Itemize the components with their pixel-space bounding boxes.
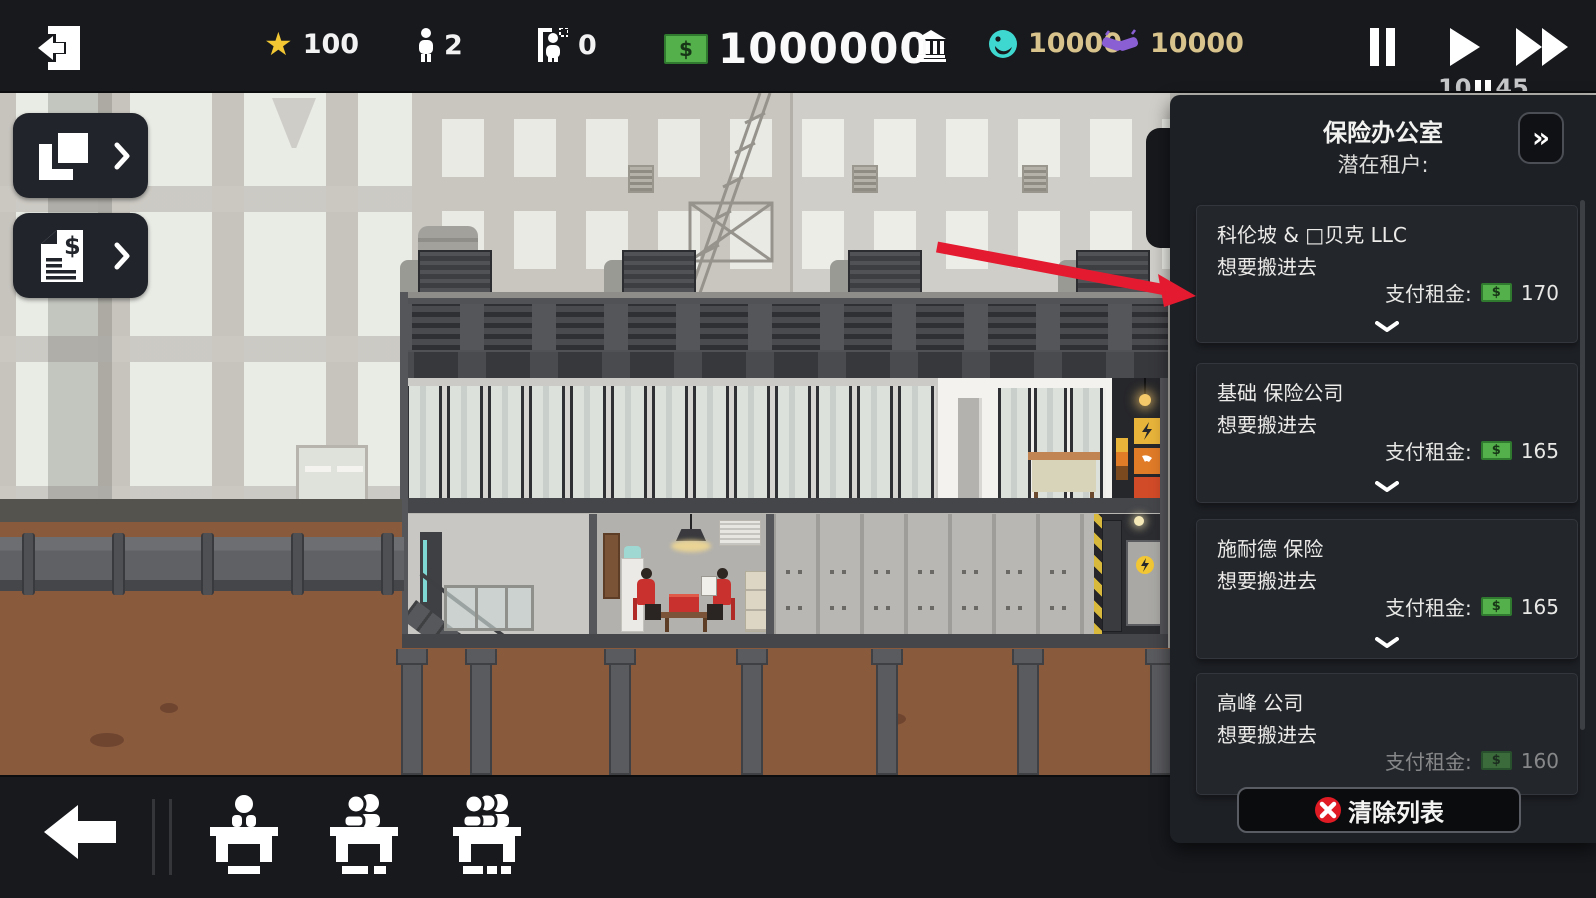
star-rating-stat: ★ 100 <box>264 28 359 60</box>
rent-value: 160 <box>1521 749 1559 773</box>
window-ac-unit <box>628 165 654 193</box>
floors-menu-button[interactable] <box>13 113 148 198</box>
desk-3-person-icon <box>449 793 525 877</box>
pause-button[interactable] <box>1368 28 1398 70</box>
support-pier <box>470 665 492 775</box>
support-pier <box>741 665 763 775</box>
poster-stack <box>1116 438 1128 480</box>
electrical-cabinet <box>1126 540 1162 626</box>
influence-icon <box>988 29 1018 59</box>
play-icon <box>1448 28 1482 66</box>
back-button[interactable] <box>44 803 118 865</box>
roof-duct <box>604 260 622 294</box>
rent-label: 支付租金: <box>1385 592 1472 621</box>
support-pier <box>401 665 423 775</box>
tenant-name: 科伦坡 & □贝克 LLC <box>1217 220 1557 250</box>
mechanical-floor-lower <box>400 352 1168 378</box>
tower-right-wall <box>1160 378 1168 648</box>
clock-minutes: 45 <box>1495 74 1528 93</box>
rent-value: 165 <box>1521 595 1559 619</box>
expand-card-button[interactable] <box>1373 479 1401 498</box>
sidewalk <box>0 499 402 522</box>
lamp-bulb <box>1139 394 1151 406</box>
expand-card-button[interactable] <box>1373 635 1401 654</box>
move-in-icon <box>538 28 568 62</box>
cash-icon: $ <box>664 34 708 64</box>
table-leg <box>703 618 707 632</box>
pipe-coupling <box>381 533 394 595</box>
fast-forward-button[interactable] <box>1516 28 1572 70</box>
rent-value: 170 <box>1521 281 1559 305</box>
movers-stat: 0 <box>538 28 597 62</box>
money-value: 1000000 <box>718 24 930 73</box>
hazard-stripe <box>1094 514 1102 634</box>
tenant-card[interactable]: 施耐德 保险 想要搬进去 支付租金: $ 165 <box>1196 519 1578 659</box>
movers-value: 0 <box>578 30 597 61</box>
tenant-name: 高峰 公司 <box>1217 688 1557 718</box>
tenant-card[interactable]: 科伦坡 & □贝克 LLC 想要搬进去 支付租金: $ 170 <box>1196 205 1578 343</box>
contacts-value: 10000 <box>1150 28 1244 59</box>
break-room[interactable] <box>597 514 766 634</box>
window-ac-unit <box>1022 165 1048 193</box>
tenant-name: 基础 保险公司 <box>1217 378 1557 408</box>
window-ac-unit <box>852 165 878 193</box>
interior-wall <box>589 514 597 634</box>
ac-unit <box>719 520 761 546</box>
rent-row: 支付租金: $ 165 <box>1385 592 1559 621</box>
vacant-insurance-office[interactable] <box>938 378 1112 500</box>
tenant-card[interactable]: 高峰 公司 想要搬进去 支付租金: $ 160 <box>1196 673 1578 795</box>
utility-door <box>1102 520 1122 632</box>
contacts-stat: 10000 <box>1100 28 1244 59</box>
glass-balustrade <box>444 585 534 631</box>
back-door <box>603 533 620 599</box>
tenant-name: 施耐德 保险 <box>1217 534 1557 564</box>
desk-2-person-icon <box>326 793 402 877</box>
upper-floor-glass-panels <box>406 386 936 500</box>
pipe-coupling <box>112 533 125 595</box>
population-value: 2 <box>444 30 463 61</box>
svg-text:$: $ <box>64 232 81 260</box>
play-button[interactable] <box>1448 28 1482 70</box>
pipe-coupling <box>201 533 214 595</box>
support-pier <box>396 649 428 665</box>
clear-list-button[interactable]: 清除列表 <box>1237 787 1521 833</box>
finances-menu-button[interactable]: $ <box>13 213 148 298</box>
desk-1-person-icon <box>206 793 282 877</box>
tenant-panel: 保险办公室 潜在租户: » 科伦坡 & □贝克 LLC 想要搬进去 支付租金: … <box>1170 95 1596 843</box>
rent-value: 165 <box>1521 439 1559 463</box>
chevron-right-icon <box>114 242 130 270</box>
toolbar-divider <box>152 799 172 875</box>
support-pier <box>604 649 636 665</box>
expand-card-button[interactable] <box>1373 319 1401 338</box>
exit-button[interactable] <box>34 22 86 74</box>
invoice-icon: $ <box>37 228 87 284</box>
cash-icon: $ <box>1481 441 1512 460</box>
paneled-corridor[interactable] <box>774 514 1094 634</box>
fast-forward-icon <box>1516 28 1572 66</box>
support-pier <box>1017 665 1039 775</box>
desk-2-person-button[interactable] <box>326 793 402 881</box>
rent-label: 支付租金: <box>1385 746 1472 775</box>
population-stat: 2 <box>418 28 463 62</box>
money-stat: $ 1000000 <box>664 24 930 73</box>
floor-slab <box>400 498 1168 513</box>
roof-duct <box>1058 260 1076 294</box>
roof-duct <box>830 260 848 294</box>
warning-poster <box>1134 477 1160 499</box>
office-desk <box>1032 460 1096 492</box>
panel-scrollbar[interactable] <box>1580 200 1585 730</box>
dirt-blotch <box>90 733 124 747</box>
desk-3-person-button[interactable] <box>449 793 525 881</box>
pause-icon <box>1368 28 1398 66</box>
chevron-down-icon <box>1375 637 1399 648</box>
electric-poster <box>1134 418 1160 444</box>
person-icon <box>418 28 434 62</box>
stairwell-room[interactable] <box>408 514 589 634</box>
hvac-unit <box>418 250 492 294</box>
exit-door-icon <box>34 22 86 74</box>
cash-icon: $ <box>1481 751 1512 770</box>
roof-duct <box>400 260 418 294</box>
clear-list-label: 清除列表 <box>1348 793 1444 828</box>
ground-slab <box>400 634 1168 649</box>
bank-button[interactable] <box>916 30 946 66</box>
lamp-cord <box>690 514 692 530</box>
support-pier <box>609 665 631 775</box>
rent-label: 支付租金: <box>1385 436 1472 465</box>
lamp-cord <box>1144 378 1146 394</box>
back-arrow-icon <box>44 803 118 861</box>
chevron-down-icon <box>1375 321 1399 332</box>
support-pier <box>1012 649 1044 665</box>
cash-icon: $ <box>1481 283 1512 302</box>
layers-icon <box>37 128 95 184</box>
desk-1-person-button[interactable] <box>206 793 282 881</box>
phone-poster <box>1134 448 1160 474</box>
support-pier <box>871 649 903 665</box>
hvac-unit <box>848 250 922 294</box>
support-pier <box>465 649 497 665</box>
lamp-glow <box>671 540 711 552</box>
red-cooler-box <box>669 594 699 612</box>
support-pier <box>876 665 898 775</box>
game-screen: ★ 100 2 0 $ 1000000 <box>0 0 1596 898</box>
table-leg <box>665 618 669 632</box>
rent-row: 支付租金: $ 170 <box>1385 278 1559 307</box>
chevron-double-right-icon: » <box>1532 121 1550 154</box>
panel-rivets <box>774 606 1094 610</box>
hvac-unit <box>622 250 696 294</box>
support-pier <box>736 649 768 665</box>
rent-row: 支付租金: $ 165 <box>1385 436 1559 465</box>
newspaper <box>701 576 717 596</box>
office-door <box>958 398 982 500</box>
utility-room[interactable] <box>1094 514 1168 634</box>
chevron-right-icon <box>114 142 130 170</box>
star-icon: ★ <box>264 28 293 60</box>
utility-lamp <box>1134 516 1144 526</box>
chevron-down-icon <box>1375 481 1399 492</box>
game-clock: 10 45 <box>1438 74 1529 93</box>
rent-row: 支付租金: $ 160 <box>1385 746 1559 775</box>
handshake-icon <box>1100 29 1140 59</box>
fire-escape <box>685 93 780 293</box>
pipe-coupling <box>22 533 35 595</box>
star-rating-value: 100 <box>303 29 359 60</box>
cash-icon: $ <box>1481 597 1512 616</box>
office-desk-top <box>1028 452 1100 460</box>
pipe-coupling <box>291 533 304 595</box>
dirt-blotch <box>160 703 178 713</box>
rent-label: 支付租金: <box>1385 278 1472 307</box>
clear-x-icon <box>1314 796 1342 824</box>
support-pier <box>1150 665 1172 775</box>
high-voltage-icon <box>1136 556 1154 574</box>
collapse-panel-button[interactable]: » <box>1518 112 1564 164</box>
clock-hours: 10 <box>1438 74 1471 93</box>
panel-rivets <box>774 570 1094 574</box>
top-bar: ★ 100 2 0 $ 1000000 <box>0 0 1596 93</box>
interior-wall <box>766 514 774 634</box>
roof-louvers <box>400 304 1168 350</box>
clock-pause-icon <box>1475 80 1491 94</box>
bank-icon <box>916 30 946 62</box>
tenant-card[interactable]: 基础 保险公司 想要搬进去 支付租金: $ 165 <box>1196 363 1578 503</box>
hvac-unit <box>1076 250 1150 294</box>
